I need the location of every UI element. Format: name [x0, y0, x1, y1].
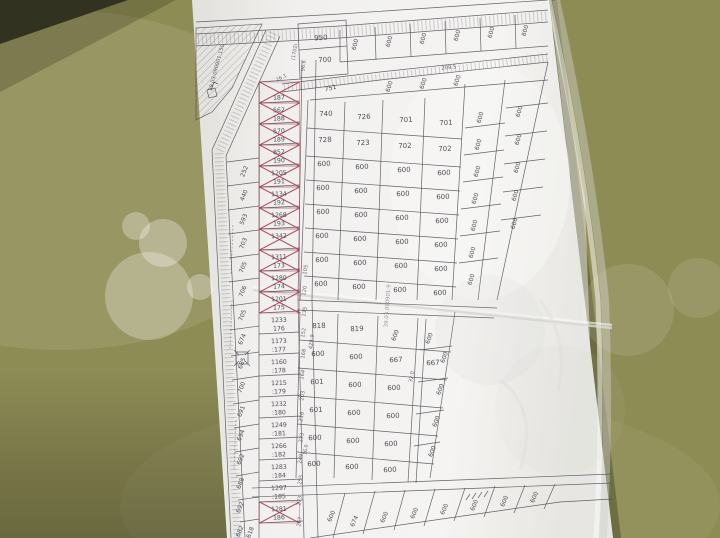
map-label: 600: [437, 169, 451, 177]
map-label: 702: [398, 142, 412, 150]
map-label: 1249: [271, 422, 287, 430]
map-label: 600: [394, 262, 408, 270]
map-label: 600: [349, 353, 363, 361]
map-label: 600: [353, 259, 367, 267]
map-label: 600: [434, 241, 448, 249]
map-label: 600: [353, 235, 367, 243]
map-label: 600: [433, 289, 447, 297]
map-label: :185: [272, 493, 286, 500]
map-label: 189: [273, 136, 285, 143]
map-label: 188: [273, 115, 285, 122]
map-label: 600: [307, 460, 321, 468]
map-label: 186: [273, 514, 285, 521]
map-label: 1173: [271, 338, 287, 346]
map-label: 600: [347, 409, 361, 417]
map-label: 193: [273, 220, 285, 227]
central-plot-column: 1875621885701898521901205191113419212681…: [271, 94, 287, 521]
map-label: 600: [346, 437, 360, 445]
map-label: 600: [345, 463, 359, 471]
map-label: 1201: [271, 296, 287, 304]
map-label: 600: [434, 265, 448, 273]
map-label: 600: [311, 350, 325, 358]
map-label: 818: [312, 322, 326, 330]
map-label: 1205: [271, 170, 287, 178]
map-label: 667: [389, 356, 403, 364]
map-label: 600: [435, 217, 449, 225]
map-label: 600: [314, 280, 328, 288]
map-label: 600: [317, 160, 331, 168]
watermark-bubble: [582, 264, 674, 356]
map-label: 1266: [271, 443, 287, 451]
map-label: 175: [273, 304, 285, 311]
map-label: 600: [315, 256, 329, 264]
map-label: 852: [273, 149, 285, 156]
map-label: 667: [426, 359, 440, 367]
map-label: 187: [273, 94, 285, 101]
map-label: 723: [356, 139, 370, 147]
map-label: 191: [273, 178, 285, 185]
map-label: :179: [272, 388, 286, 395]
map-label: :178: [272, 367, 286, 374]
map-label: :180: [272, 409, 286, 416]
map-label: 1232: [271, 401, 287, 409]
map-label: 600: [386, 412, 400, 420]
map-label: 1297: [271, 485, 287, 493]
map-label: 1215: [271, 380, 287, 388]
map-label: 600: [395, 238, 409, 246]
map-label: 174: [273, 283, 285, 290]
map-label: 1280: [271, 275, 287, 283]
map-label: 819: [350, 325, 364, 333]
map-label: 600: [397, 166, 411, 174]
map-label: 570: [273, 128, 285, 135]
map-label: :184: [272, 472, 286, 479]
map-label: 192: [273, 199, 285, 206]
map-label: 600: [315, 232, 329, 240]
map-label: 700: [318, 56, 332, 65]
map-label: 600: [354, 187, 368, 195]
map-label: 726: [357, 113, 371, 121]
map-label: 600: [348, 381, 362, 389]
map-label: 601: [310, 378, 324, 386]
photo-canvas: 39.03:090901:150(1702)96.626.1209.5429.9…: [0, 0, 720, 538]
map-label: 1160: [271, 359, 287, 367]
map-label: 600: [352, 283, 366, 291]
map-label: :177: [272, 346, 286, 353]
cadastral-plan-photo: 39.03:090901:150(1702)96.626.1209.5429.9…: [0, 0, 720, 538]
map-label: 600: [396, 190, 410, 198]
map-label: 1281: [271, 506, 287, 514]
watermark-bubble: [105, 252, 193, 340]
map-label: 601: [309, 406, 323, 414]
map-label: 600: [436, 193, 450, 201]
map-label: 600: [316, 208, 330, 216]
map-label: 600: [384, 440, 398, 448]
map-label: 600: [316, 184, 330, 192]
map-label: 600: [387, 384, 401, 392]
map-label: 176: [273, 325, 285, 332]
map-label: 1342: [271, 233, 287, 241]
map-label: 701: [399, 116, 413, 124]
map-label: 600: [354, 211, 368, 219]
map-label: 1134: [271, 191, 287, 199]
map-label: 600: [308, 434, 322, 442]
map-label: 600: [383, 466, 397, 474]
watermark-bubble: [495, 345, 625, 475]
map-label: :182: [272, 451, 286, 458]
map-label: 740: [319, 110, 333, 118]
map-label: 1268: [271, 212, 287, 220]
map-label: 950: [314, 34, 328, 43]
map-label: :181: [272, 430, 286, 437]
map-label: 600: [393, 286, 407, 294]
map-label: 1233: [271, 317, 287, 325]
map-label: 728: [318, 136, 332, 144]
map-label: 190: [273, 157, 285, 164]
map-label: 701: [439, 119, 453, 127]
map-label: 600: [395, 214, 409, 222]
map-label: 702: [438, 145, 452, 153]
watermark-bubble: [187, 274, 213, 300]
map-label: 600: [355, 163, 369, 171]
map-label: 1311: [271, 254, 287, 262]
map-label: 1283: [271, 464, 287, 472]
map-label: 173: [273, 262, 285, 269]
map-label: 562: [273, 107, 285, 114]
